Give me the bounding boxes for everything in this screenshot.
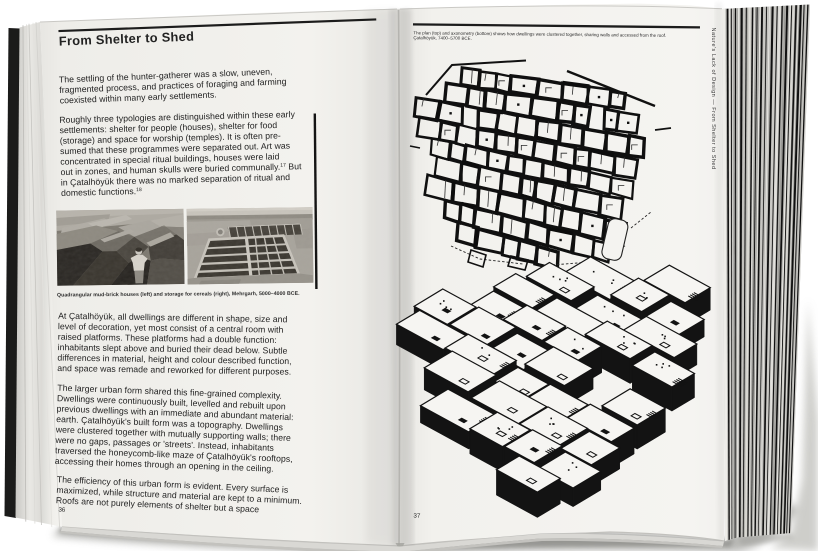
svg-text:domestic functions.18: domestic functions.18 [61,186,142,198]
svg-text:Nature's Lack of Design — From: Nature's Lack of Design — From Shelter t… [710,28,716,170]
svg-text:36: 36 [58,507,66,514]
svg-text:Çatalhöyük, 7400–5700 BCE.: Çatalhöyük, 7400–5700 BCE. [413,35,472,41]
svg-text:37: 37 [413,513,421,520]
